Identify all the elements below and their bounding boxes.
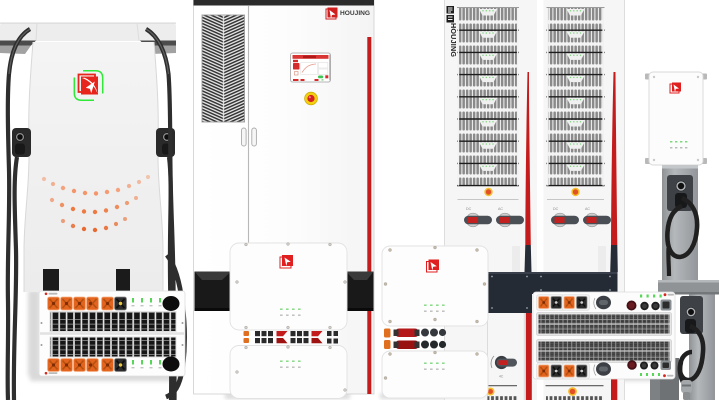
- svg-text:DC: DC: [553, 207, 559, 211]
- svg-text:AC: AC: [585, 207, 590, 211]
- svg-text:HOUJING: HOUJING: [449, 23, 458, 57]
- svg-text:HOUJING: HOUJING: [340, 10, 370, 17]
- svg-text:4C: 4C: [499, 375, 504, 379]
- svg-text:AC: AC: [498, 207, 503, 211]
- svg-text:DC: DC: [466, 207, 472, 211]
